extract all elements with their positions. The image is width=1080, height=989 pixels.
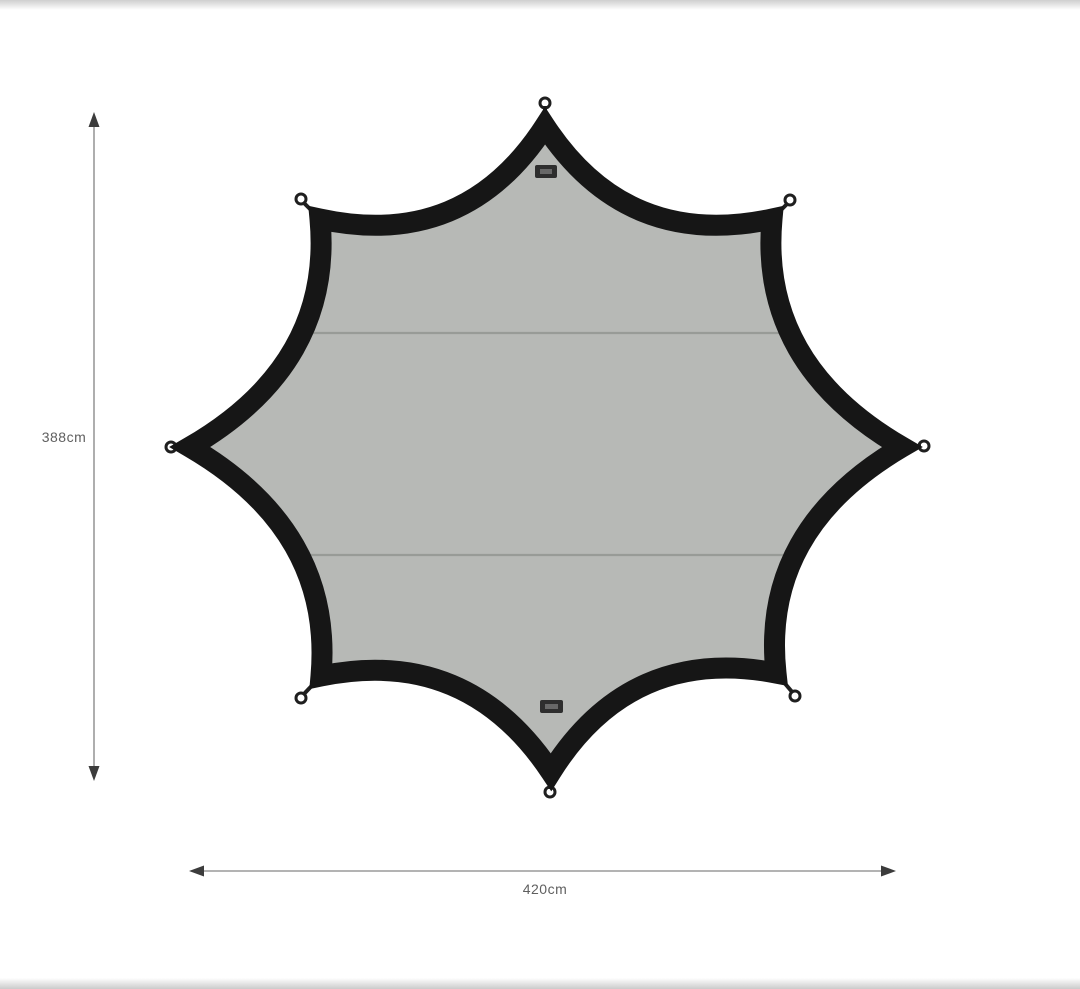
tie-out-loop-top-right-icon <box>785 195 795 205</box>
tie-out-loop-top-left-icon <box>296 194 306 204</box>
arrow-right-icon <box>881 866 896 877</box>
brand-label-bottom-icon <box>540 700 563 713</box>
tarp-fabric <box>190 126 902 772</box>
photo-edge-top <box>0 0 1080 10</box>
arrow-down-icon <box>89 766 100 781</box>
brand-label-top-icon <box>535 165 557 178</box>
diagram-canvas: 388cm 420cm <box>0 0 1080 989</box>
width-dimension-label: 420cm <box>523 881 568 897</box>
height-dimension-label: 388cm <box>42 429 87 445</box>
arrow-up-icon <box>89 112 100 127</box>
tie-out-loop-bottom-right-icon <box>790 691 800 701</box>
tie-out-loop-top-icon <box>540 98 550 108</box>
arrow-left-icon <box>189 866 204 877</box>
height-dimension: 388cm <box>42 112 100 781</box>
width-dimension: 420cm <box>189 866 896 898</box>
tie-out-loop-bottom-left-icon <box>296 693 306 703</box>
tarp-diagram-svg: 388cm 420cm <box>0 0 1080 989</box>
photo-edge-bottom <box>0 978 1080 989</box>
